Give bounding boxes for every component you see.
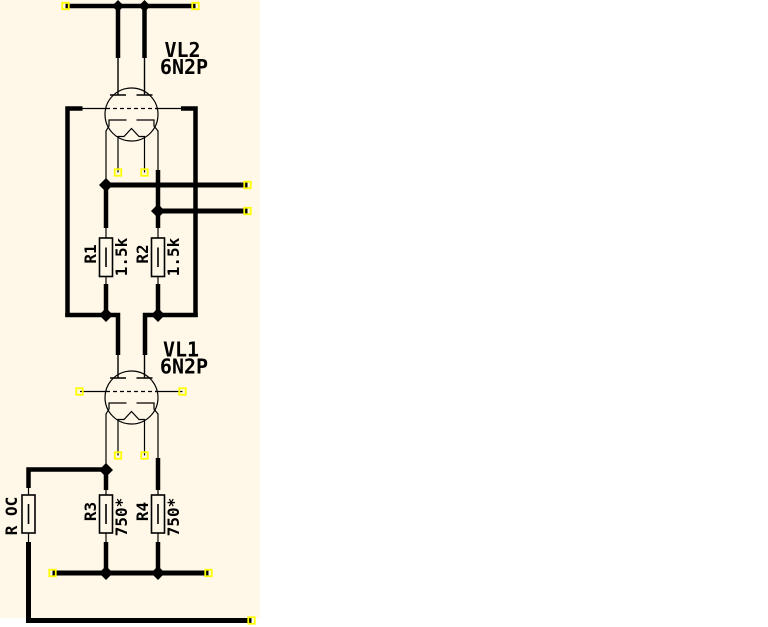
resistor-r1[interactable] [100, 238, 113, 277]
schematic-canvas[interactable]: VL2 6N2P VL1 6N2P R1 1.5k R2 1.5k R3 750… [0, 0, 768, 627]
resistor-r4[interactable] [152, 495, 165, 533]
resistor-r2[interactable] [152, 238, 165, 277]
label-r3-ref: R3 [81, 502, 100, 521]
label-r2-value: 1.5k [164, 237, 183, 276]
label-vl2-type: 6N2P [160, 55, 208, 79]
label-roc-ref: R OC [2, 497, 21, 536]
resistor-roc[interactable] [22, 495, 35, 533]
resistor-r3[interactable] [100, 495, 113, 533]
schematic-page: VL2 6N2P VL1 6N2P R1 1.5k R2 1.5k R3 750… [0, 0, 768, 627]
label-r3-value: 750* [112, 498, 131, 537]
label-r4-value: 750* [164, 498, 183, 537]
label-r1-ref: R1 [81, 244, 100, 263]
label-vl1-type: 6N2P [160, 355, 208, 379]
label-r4-ref: R4 [133, 502, 152, 521]
label-r1-value: 1.5k [112, 237, 131, 276]
label-r2-ref: R2 [133, 244, 152, 263]
